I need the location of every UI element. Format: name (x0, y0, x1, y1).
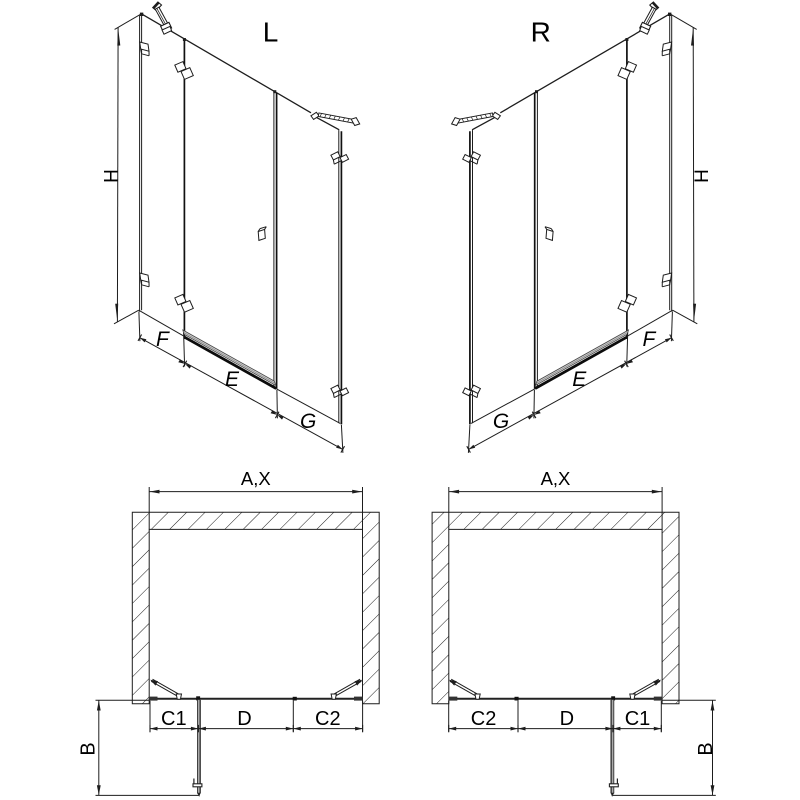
svg-text:H: H (102, 169, 123, 183)
svg-text:E: E (572, 368, 587, 391)
svg-text:H: H (692, 169, 713, 183)
svg-text:D: D (237, 708, 251, 730)
svg-text:G: G (493, 410, 509, 433)
svg-text:L: L (263, 17, 279, 48)
svg-text:C1: C1 (161, 708, 187, 730)
svg-text:C2: C2 (471, 708, 497, 730)
svg-text:R: R (531, 17, 551, 48)
svg-text:E: E (225, 368, 240, 391)
svg-text:D: D (560, 708, 574, 730)
svg-text:C1: C1 (625, 708, 651, 730)
svg-text:B: B (695, 742, 717, 755)
svg-text:A,X: A,X (241, 468, 271, 489)
svg-text:F: F (156, 328, 170, 351)
svg-text:G: G (300, 410, 316, 433)
svg-text:C2: C2 (315, 708, 341, 730)
svg-text:A,X: A,X (541, 468, 571, 489)
svg-text:B: B (78, 742, 100, 755)
svg-text:F: F (642, 328, 656, 351)
